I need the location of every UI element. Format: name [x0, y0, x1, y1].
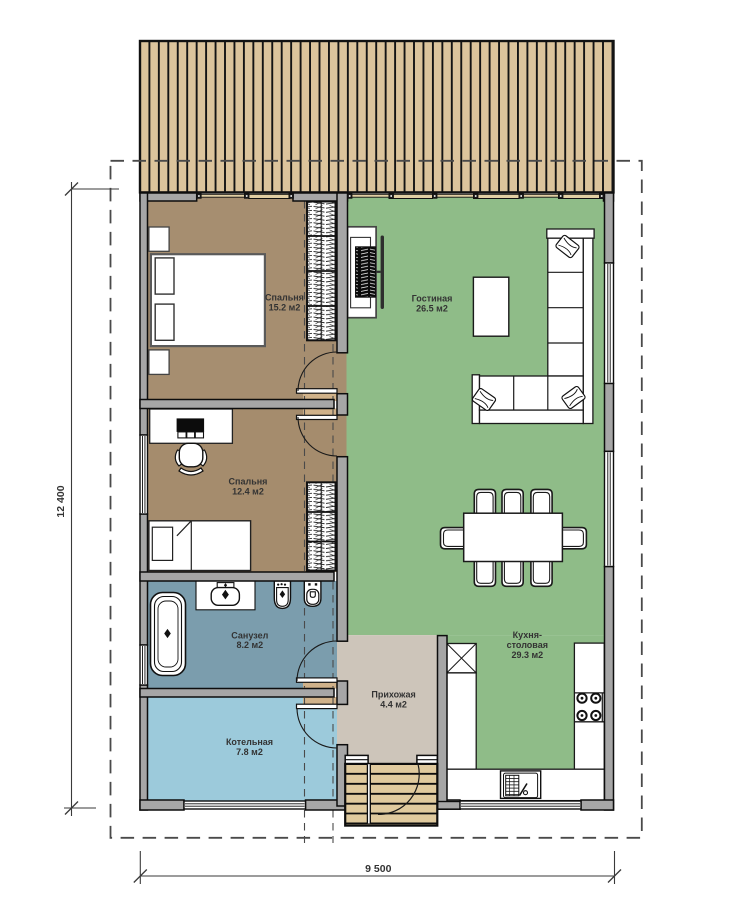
- svg-text:Санузел: Санузел: [231, 630, 268, 640]
- svg-text:Кухня-: Кухня-: [513, 630, 542, 640]
- svg-text:15.2 м2: 15.2 м2: [269, 303, 301, 313]
- svg-text:26.5 м2: 26.5 м2: [416, 303, 448, 313]
- svg-text:4.4 м2: 4.4 м2: [380, 699, 407, 709]
- svg-text:Котельная: Котельная: [226, 737, 273, 747]
- svg-text:7.8 м2: 7.8 м2: [236, 747, 263, 757]
- svg-text:12 400: 12 400: [55, 485, 67, 517]
- svg-text:Спальня: Спальня: [229, 476, 268, 486]
- svg-text:29.3 м2: 29.3 м2: [511, 650, 543, 660]
- svg-text:9 500: 9 500: [365, 863, 391, 875]
- svg-text:Прихожая: Прихожая: [371, 690, 415, 700]
- svg-text:столовая: столовая: [507, 640, 548, 650]
- svg-text:12.4 м2: 12.4 м2: [232, 486, 264, 496]
- svg-text:Спальня: Спальня: [265, 293, 304, 303]
- svg-text:8.2 м2: 8.2 м2: [236, 640, 263, 650]
- svg-text:Гостиная: Гостиная: [412, 294, 453, 304]
